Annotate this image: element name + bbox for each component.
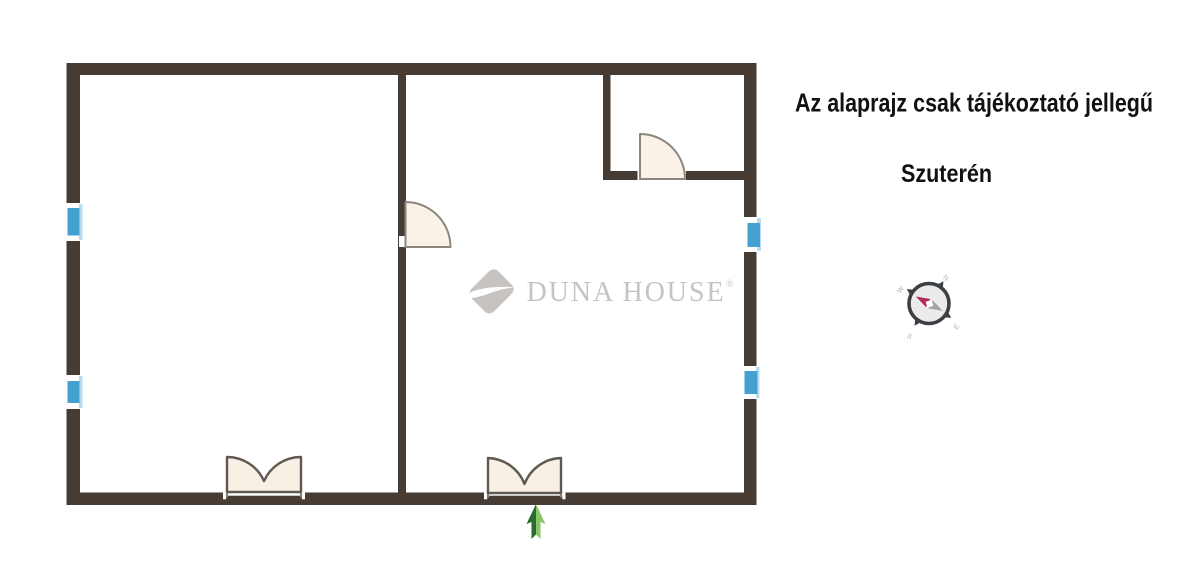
- svg-text:Szuterén: Szuterén: [901, 160, 992, 188]
- svg-text:W: W: [896, 285, 906, 295]
- svg-text:DUNA HOUSE: DUNA HOUSE: [527, 276, 726, 308]
- svg-text:®: ®: [726, 279, 734, 290]
- svg-text:N: N: [941, 274, 949, 283]
- svg-text:Az alaprajz csak tájékoztató j: Az alaprajz csak tájékoztató jellegű: [795, 88, 1153, 118]
- svg-text:S: S: [905, 333, 913, 342]
- svg-text:E: E: [953, 323, 962, 331]
